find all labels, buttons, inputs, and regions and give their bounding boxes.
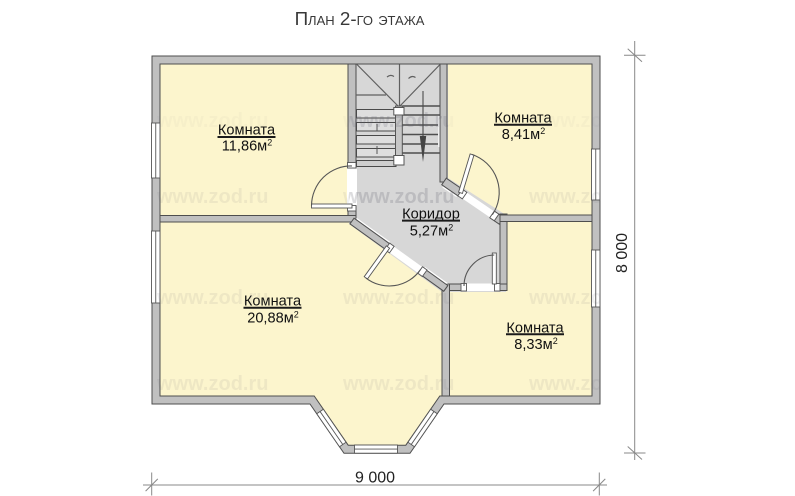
svg-text:8,33м2: 8,33м2 xyxy=(514,336,557,353)
svg-text:www.zod.ru: www.zod.ru xyxy=(342,287,454,309)
svg-text:www.zod.ru: www.zod.ru xyxy=(342,373,454,395)
svg-text:20,88м2: 20,88м2 xyxy=(247,309,299,326)
svg-text:www.zod.ru: www.zod.ru xyxy=(342,186,454,208)
svg-text:www.zod.ru: www.zod.ru xyxy=(156,186,268,208)
svg-text:План 2-го этажа: План 2-го этажа xyxy=(295,8,425,29)
svg-text:11,86м2: 11,86м2 xyxy=(222,137,273,154)
svg-text:8 000: 8 000 xyxy=(614,233,631,273)
svg-text:www.zod.ru: www.zod.ru xyxy=(156,110,268,132)
svg-text:9 000: 9 000 xyxy=(355,469,395,486)
svg-text:5,27м2: 5,27м2 xyxy=(410,222,453,239)
svg-text:www.zod.ru: www.zod.ru xyxy=(156,373,268,395)
svg-text:www.zod.ru: www.zod.ru xyxy=(156,287,268,309)
svg-text:www.zod.ru: www.zod.ru xyxy=(342,110,454,132)
